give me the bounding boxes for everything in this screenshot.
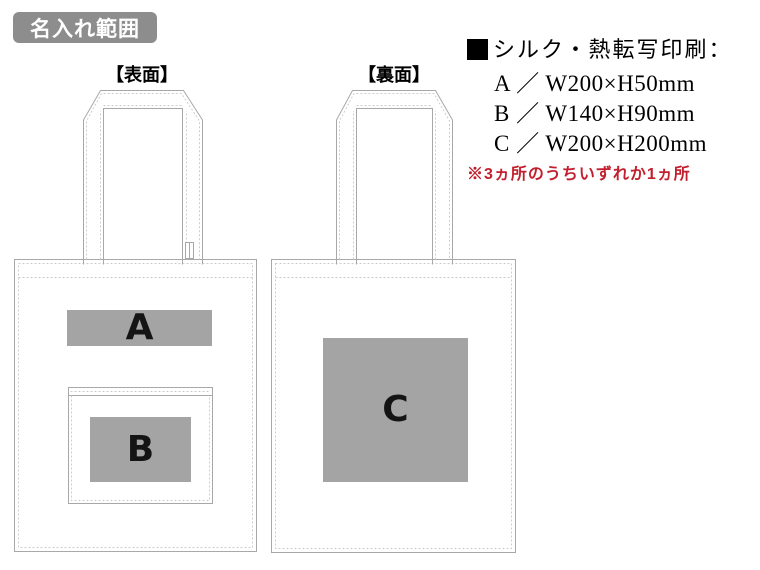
print-area-badge: 名入れ範囲	[13, 12, 157, 43]
spec-note: ※3ヵ所のうちいずれか1ヵ所	[467, 160, 759, 184]
back-bag-handle	[337, 91, 453, 265]
print-spec-panel: シルク・熱転写印刷： A ／ W200×H50mm B ／ W140×H90mm…	[467, 37, 759, 184]
print-area-a-label: A	[126, 310, 154, 346]
spec-heading: シルク・熱転写印刷：	[467, 37, 759, 62]
print-area-b: B	[90, 417, 191, 482]
back-bag-label: 【裏面】	[339, 61, 449, 87]
strap-loop-tab	[186, 243, 194, 259]
print-area-a: A	[67, 310, 212, 346]
print-area-c: C	[323, 338, 468, 482]
spec-heading-text: シルク・熱転写印刷：	[493, 37, 733, 62]
product-print-area-diagram: { "badge": { "label": "名入れ範囲" }, "colors…	[0, 0, 760, 570]
print-area-b-label: B	[127, 432, 154, 468]
front-bag-label: 【表面】	[87, 61, 197, 87]
black-square-bullet-icon	[467, 39, 488, 60]
spec-item-a: A ／ W200×H50mm	[494, 69, 759, 99]
spec-item-b: B ／ W140×H90mm	[494, 99, 759, 129]
print-area-c-label: C	[382, 392, 408, 428]
spec-item-c: C ／ W200×H200mm	[494, 129, 759, 159]
front-bag-handle	[84, 91, 203, 265]
front-bag-outline	[15, 260, 257, 552]
